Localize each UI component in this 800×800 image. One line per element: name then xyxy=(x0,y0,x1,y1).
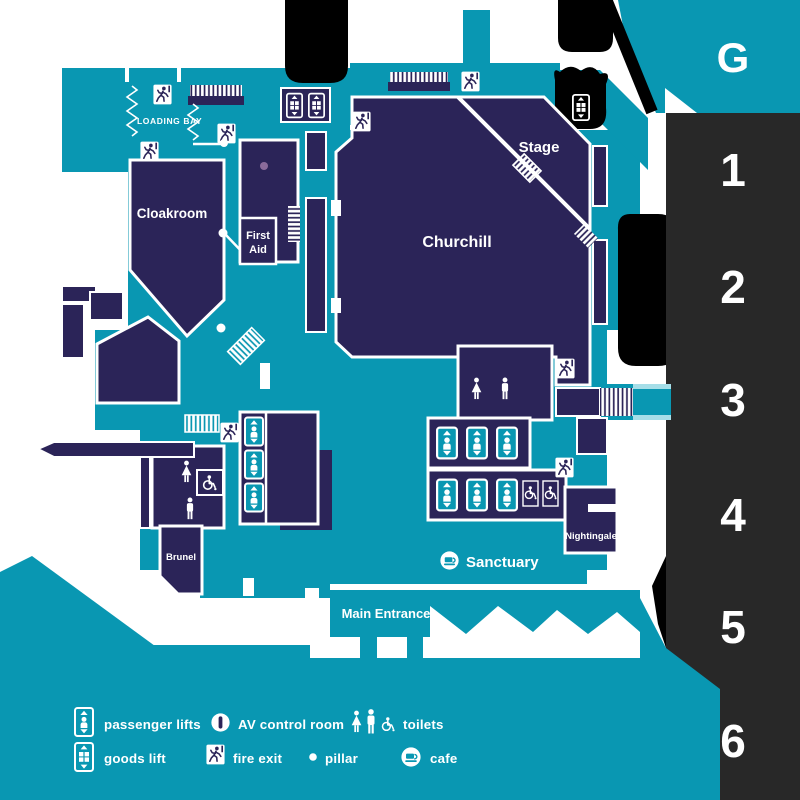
floor-button-3[interactable]: 3 xyxy=(720,374,746,426)
area-label-loading-bay: LOADING BAY xyxy=(137,116,202,126)
floor-button-2[interactable]: 2 xyxy=(720,261,746,313)
passenger-lift-icon xyxy=(437,428,457,459)
fire-exit-icon xyxy=(555,458,573,478)
corridor-highlight xyxy=(633,384,671,389)
floor-label: 5 xyxy=(720,601,746,653)
fire-exit-icon xyxy=(556,359,574,379)
area-label-main-entrance: Main Entrance xyxy=(342,606,431,621)
area-label-sanctuary: Sanctuary xyxy=(466,554,539,571)
wall-strip xyxy=(388,82,450,91)
floor-label: 1 xyxy=(720,144,746,196)
wall-strip xyxy=(188,96,244,105)
pillar-icon xyxy=(219,229,228,238)
room-label-stage: Stage xyxy=(519,139,560,156)
passenger-lift-icon xyxy=(245,418,263,446)
room-label-first-aid: Aid xyxy=(249,244,267,256)
room-label-cloakroom: Cloakroom xyxy=(137,206,208,221)
passenger-lift-icon xyxy=(245,451,263,479)
room-block xyxy=(97,317,179,403)
fire-exit-icon xyxy=(220,423,238,443)
floor-label: 3 xyxy=(720,374,746,426)
room-block xyxy=(577,418,607,454)
legend-label: passenger lifts xyxy=(104,717,201,732)
legend-label: fire exit xyxy=(233,751,282,766)
toilets-room xyxy=(458,346,552,420)
wall-strip xyxy=(140,446,150,528)
wall-strip xyxy=(306,132,326,170)
stair-corridor xyxy=(633,384,671,420)
passenger-lift-icon xyxy=(245,484,263,512)
room-label-churchill: Churchill xyxy=(422,234,491,251)
floor-button-6[interactable]: 6 xyxy=(720,715,746,767)
floor-label: G xyxy=(717,34,750,81)
floor-button-1[interactable]: 1 xyxy=(720,144,746,196)
room-label-brunel: Brunel xyxy=(166,552,196,563)
legend-label: toilets xyxy=(403,717,444,732)
wall-strip xyxy=(556,388,600,416)
fire-exit-icon xyxy=(206,745,224,765)
fire-exit-icon xyxy=(461,72,479,92)
wall-pointer xyxy=(38,442,194,457)
legend-label: AV control room xyxy=(238,717,344,732)
floor-label: 4 xyxy=(720,489,746,541)
room-label-nightingale: Nightingale xyxy=(565,531,617,542)
fire-exit-icon xyxy=(352,112,370,132)
fire-exit-icon xyxy=(153,85,171,105)
corridor-highlight xyxy=(633,415,671,420)
passenger-lift-icon xyxy=(437,480,457,511)
passenger-lift-icon xyxy=(467,480,487,511)
fire-exit-icon xyxy=(140,142,158,162)
floor-label: 6 xyxy=(720,715,746,767)
legend-label: cafe xyxy=(430,751,457,766)
pillar-icon xyxy=(260,162,268,170)
legend-item-cafe: cafe xyxy=(401,747,457,766)
floor-label: 2 xyxy=(720,261,746,313)
wall-strip xyxy=(593,240,607,324)
cafe-icon xyxy=(401,747,420,766)
wall-strip xyxy=(306,198,326,332)
floor-selector: G 1 2 3 4 5 6 xyxy=(633,0,800,800)
room-nightingale xyxy=(565,487,617,553)
venue-floorplan-app: LOADING BAY Cloakroom First Aid Churchil… xyxy=(0,0,800,800)
wall-strip xyxy=(62,304,84,358)
wall-strip xyxy=(90,292,123,320)
passenger-lift-icon xyxy=(75,708,93,736)
av-control-room-icon xyxy=(211,713,229,731)
passenger-lift-icon xyxy=(497,480,517,511)
pillar-icon xyxy=(220,139,228,147)
floor-button-g[interactable]: G xyxy=(665,0,800,113)
cafe-icon xyxy=(440,551,458,569)
legend-label: goods lift xyxy=(104,751,166,766)
wall-strip xyxy=(593,146,607,206)
legend-label: pillar xyxy=(325,751,358,766)
passenger-lift-icon xyxy=(497,428,517,459)
floor-button-5[interactable]: 5 xyxy=(720,601,746,653)
passenger-lift-icon xyxy=(467,428,487,459)
floorplan-canvas: LOADING BAY Cloakroom First Aid Churchil… xyxy=(0,0,800,800)
room-label-first-aid: First xyxy=(246,230,270,242)
floor-button-4[interactable]: 4 xyxy=(720,489,746,541)
pillar-icon xyxy=(309,753,317,761)
pillar-icon xyxy=(217,324,226,333)
